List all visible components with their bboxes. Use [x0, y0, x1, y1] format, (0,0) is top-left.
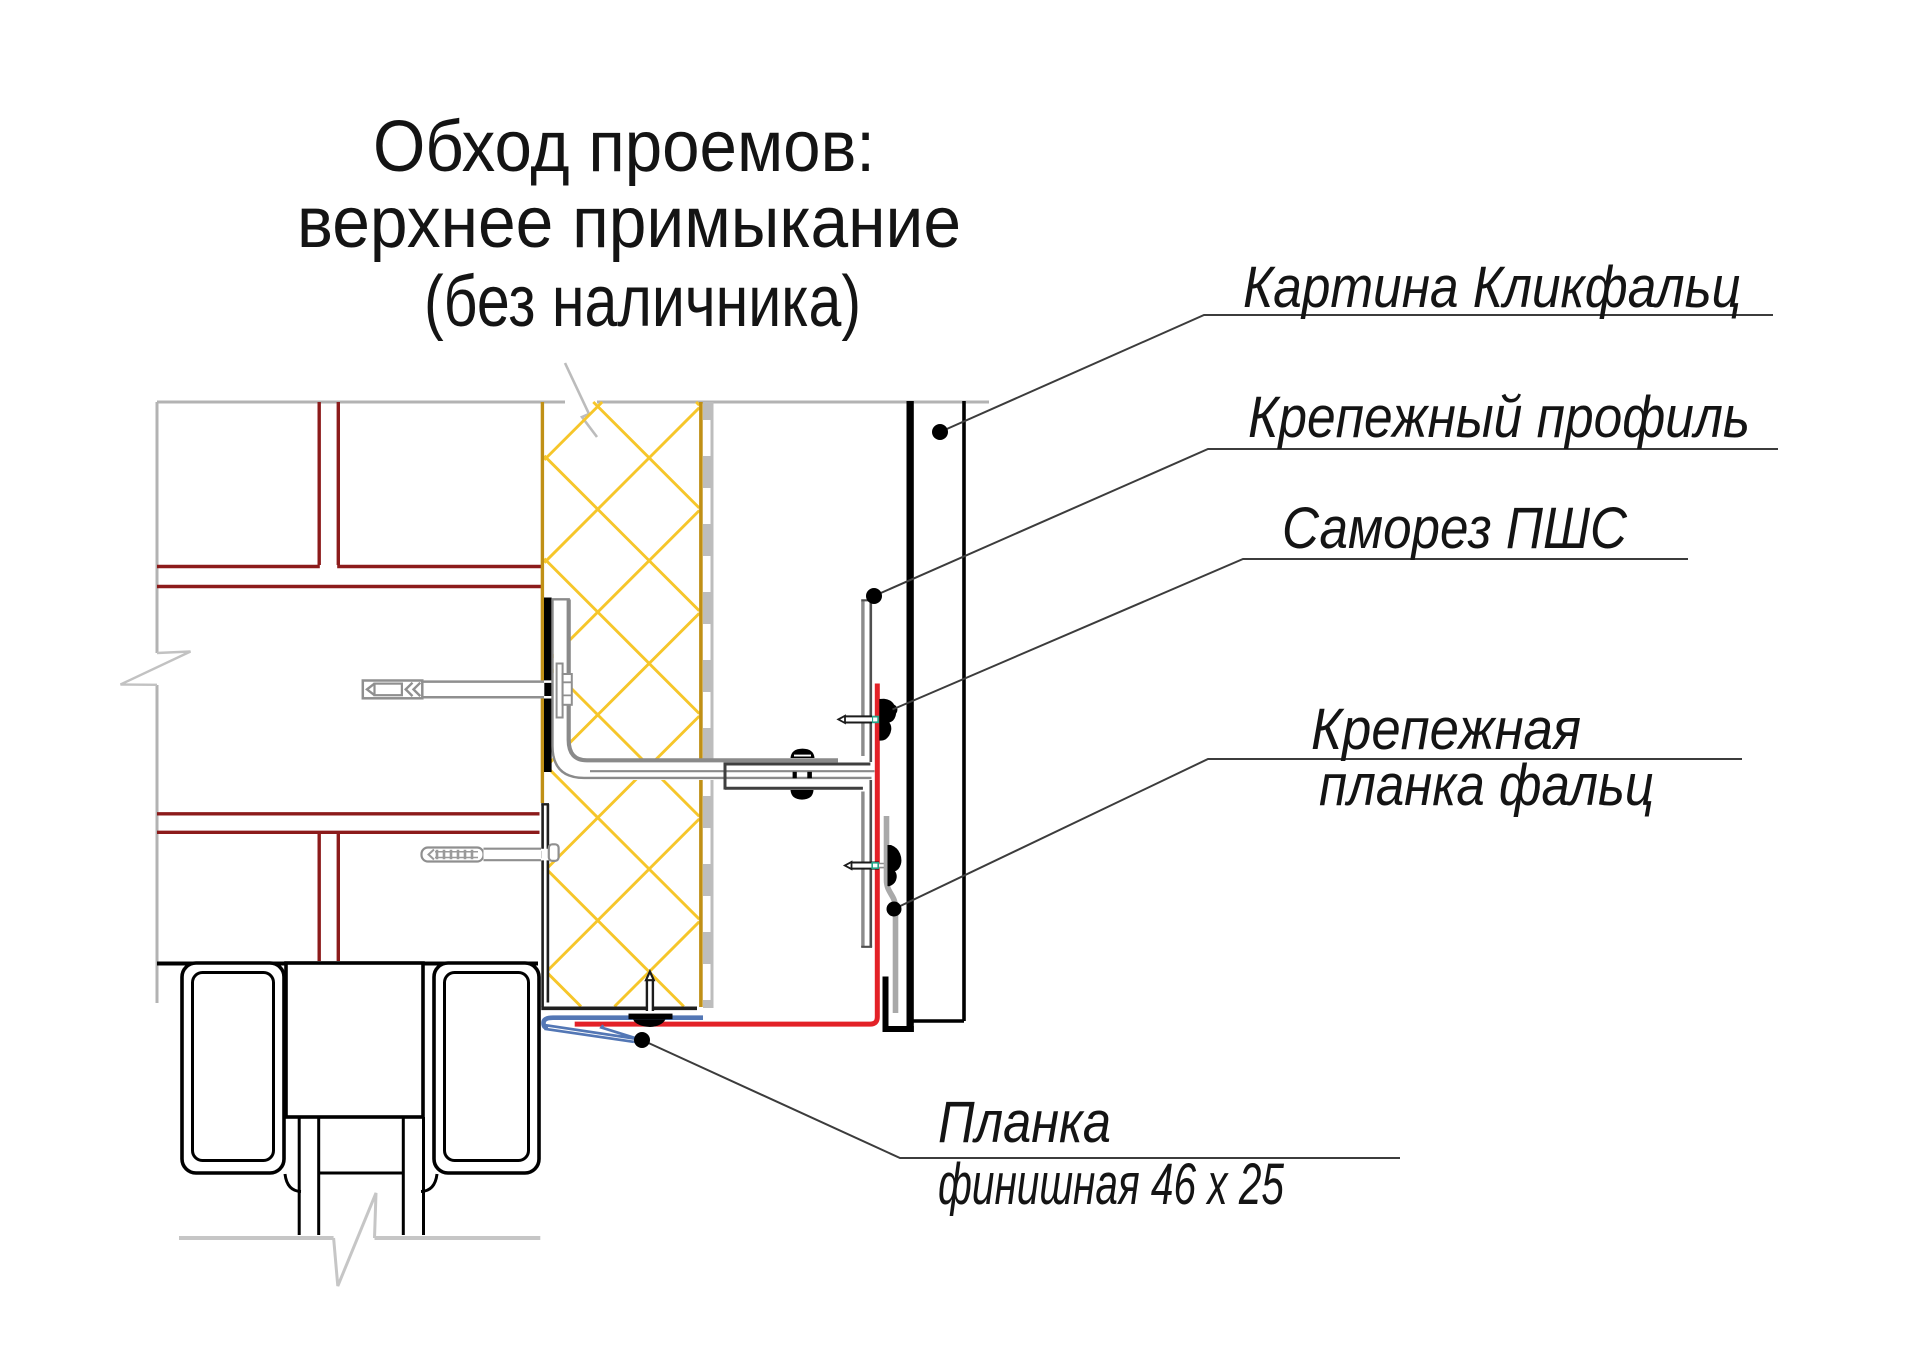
- svg-text:(без наличника): (без наличника): [424, 262, 861, 342]
- svg-text:Картина Кликфальц: Картина Кликфальц: [1243, 255, 1741, 320]
- svg-text:финишная 46 х 25: финишная 46 х 25: [938, 1152, 1285, 1217]
- svg-text:планка фальц: планка фальц: [1319, 753, 1654, 818]
- svg-text:Крепежный профиль: Крепежный профиль: [1248, 385, 1750, 450]
- svg-text:верхнее примыкание: верхнее примыкание: [297, 183, 961, 263]
- svg-text:Обход проемов:: Обход проемов:: [373, 107, 875, 187]
- svg-text:Саморез ПШС: Саморез ПШС: [1282, 496, 1628, 561]
- svg-text:Планка: Планка: [938, 1090, 1111, 1155]
